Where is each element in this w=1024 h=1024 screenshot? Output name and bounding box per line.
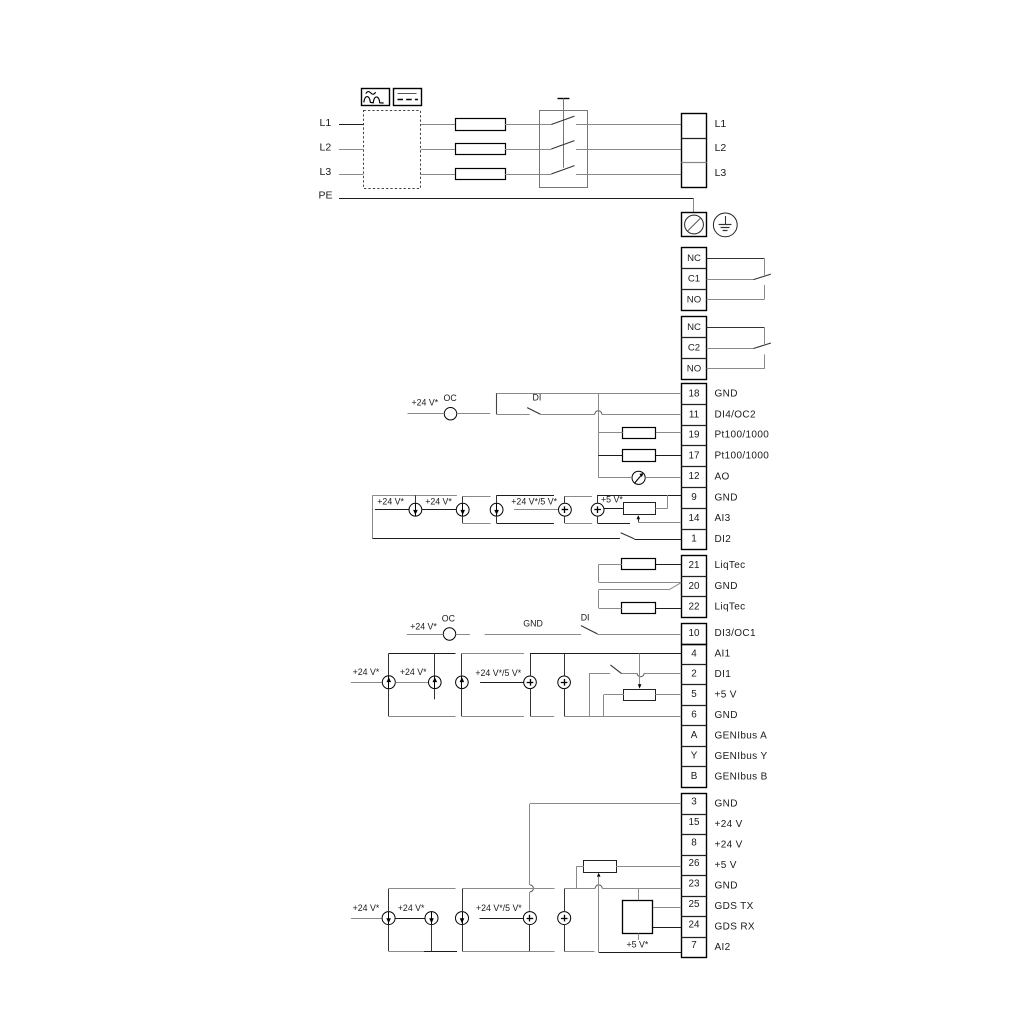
svg-text:GND: GND xyxy=(715,710,738,721)
svg-text:14: 14 xyxy=(689,513,700,524)
svg-text:21: 21 xyxy=(689,560,700,571)
svg-text:Pt100/1000: Pt100/1000 xyxy=(715,430,770,441)
svg-text:+24 V*: +24 V* xyxy=(400,667,427,677)
svg-text:C2: C2 xyxy=(688,343,700,354)
svg-text:DI3/OC1: DI3/OC1 xyxy=(715,628,756,639)
svg-text:NO: NO xyxy=(687,364,701,375)
svg-text:+24 V*: +24 V* xyxy=(353,667,380,677)
svg-text:20: 20 xyxy=(689,581,700,592)
svg-text:Y: Y xyxy=(691,751,698,762)
svg-text:3: 3 xyxy=(691,797,697,808)
svg-text:NC: NC xyxy=(687,253,701,264)
svg-text:GDS TX: GDS TX xyxy=(715,901,754,912)
svg-text:L2: L2 xyxy=(715,142,727,154)
svg-text:GND: GND xyxy=(715,880,738,891)
svg-text:+24 V*/5 V*: +24 V*/5 V* xyxy=(476,903,522,913)
svg-text:+24 V*: +24 V* xyxy=(353,903,380,913)
svg-text:7: 7 xyxy=(691,940,697,951)
svg-text:23: 23 xyxy=(689,879,700,890)
svg-text:GND: GND xyxy=(715,492,738,503)
svg-text:GND: GND xyxy=(523,619,543,629)
svg-text:DI4/OC2: DI4/OC2 xyxy=(715,410,756,421)
svg-text:+5 V: +5 V xyxy=(715,690,737,701)
svg-text:B: B xyxy=(691,771,698,782)
svg-text:AI3: AI3 xyxy=(715,513,731,524)
svg-text:GENIbus Y: GENIbus Y xyxy=(715,751,768,762)
svg-text:+24 V*: +24 V* xyxy=(377,497,404,507)
svg-text:22: 22 xyxy=(689,602,700,613)
svg-text:GENIbus A: GENIbus A xyxy=(715,731,768,742)
svg-text:17: 17 xyxy=(689,450,700,461)
svg-text:+24 V*: +24 V* xyxy=(410,622,437,632)
svg-text:C1: C1 xyxy=(688,274,700,285)
svg-text:LiqTec: LiqTec xyxy=(715,560,746,571)
svg-text:L3: L3 xyxy=(715,167,727,179)
svg-text:11: 11 xyxy=(689,409,700,420)
svg-text:15: 15 xyxy=(689,817,700,828)
svg-text:Pt100/1000: Pt100/1000 xyxy=(715,451,770,462)
svg-text:OC: OC xyxy=(444,393,458,403)
svg-text:18: 18 xyxy=(689,389,700,400)
svg-text:4: 4 xyxy=(691,648,697,659)
svg-text:25: 25 xyxy=(689,899,700,910)
svg-text:8: 8 xyxy=(691,838,697,849)
svg-text:+24 V*: +24 V* xyxy=(412,397,439,407)
svg-text:19: 19 xyxy=(689,429,700,440)
svg-text:OC: OC xyxy=(442,614,456,624)
svg-text:A: A xyxy=(691,730,698,741)
svg-text:AI2: AI2 xyxy=(715,942,731,953)
svg-text:24: 24 xyxy=(689,920,700,931)
svg-text:PE: PE xyxy=(319,190,333,202)
svg-text:AI1: AI1 xyxy=(715,649,731,660)
svg-text:+24 V*/5 V*: +24 V*/5 V* xyxy=(511,497,557,507)
svg-text:LiqTec: LiqTec xyxy=(715,602,746,613)
svg-text:1: 1 xyxy=(691,534,697,545)
svg-text:DI: DI xyxy=(533,393,542,403)
svg-text:GND: GND xyxy=(715,798,738,809)
svg-text:GENIbus B: GENIbus B xyxy=(715,771,768,782)
svg-text:26: 26 xyxy=(689,858,700,869)
svg-text:L3: L3 xyxy=(320,166,332,178)
svg-text:GDS RX: GDS RX xyxy=(715,921,755,932)
svg-text:GND: GND xyxy=(715,389,738,400)
svg-text:DI: DI xyxy=(581,613,590,623)
svg-text:NO: NO xyxy=(687,295,701,306)
svg-text:L2: L2 xyxy=(320,141,332,153)
svg-text:NC: NC xyxy=(687,322,701,333)
svg-text:+5 V*: +5 V* xyxy=(627,940,649,950)
svg-text:2: 2 xyxy=(691,669,697,680)
svg-text:+24 V*/5 V*: +24 V*/5 V* xyxy=(475,668,521,678)
svg-text:AO: AO xyxy=(715,471,730,482)
svg-text:+24 V: +24 V xyxy=(715,839,743,850)
svg-text:+24 V*: +24 V* xyxy=(398,903,425,913)
svg-text:L1: L1 xyxy=(715,118,727,130)
svg-text:L1: L1 xyxy=(320,117,332,129)
svg-text:12: 12 xyxy=(689,471,700,482)
svg-text:+24 V: +24 V xyxy=(715,819,743,830)
svg-text:6: 6 xyxy=(691,710,697,721)
svg-text:9: 9 xyxy=(691,492,697,503)
svg-text:10: 10 xyxy=(689,628,700,639)
svg-text:GND: GND xyxy=(715,581,738,592)
svg-text:DI1: DI1 xyxy=(715,669,732,680)
svg-text:DI2: DI2 xyxy=(715,534,732,545)
svg-text:+24 V*: +24 V* xyxy=(425,497,452,507)
svg-text:5: 5 xyxy=(691,689,697,700)
svg-text:+5 V: +5 V xyxy=(715,860,737,871)
